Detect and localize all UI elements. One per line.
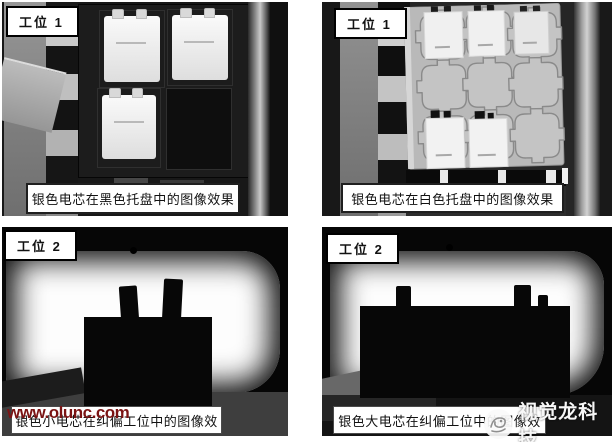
photo-edge — [270, 2, 288, 216]
station-badge: 工位 1 — [6, 6, 79, 37]
edge-dot — [130, 247, 137, 254]
tray-pin — [546, 170, 556, 184]
figure-grid: 工位 1 银色电芯在黑色托盘中的图像效果 — [0, 0, 616, 442]
machine-rail — [574, 2, 600, 216]
cell-tab — [204, 8, 215, 18]
cell-tab — [136, 9, 147, 19]
battery-cell — [172, 15, 228, 80]
brand-name-text: 视觉龙科技 — [518, 397, 616, 442]
battery-cell — [514, 11, 549, 54]
rack-block — [378, 134, 410, 160]
cell-tab — [132, 88, 143, 98]
caption: 银色电芯在黑色托盘中的图像效果 — [26, 183, 240, 214]
cell-print — [184, 41, 214, 43]
dragon-circle-logo-icon — [484, 409, 513, 439]
site-url-watermark: www.olunc.com — [7, 403, 129, 423]
rack-block — [378, 102, 410, 134]
battery-silhouette — [84, 317, 212, 408]
tray-pin — [498, 170, 506, 184]
battery-cell — [102, 95, 156, 159]
dragon-glyph — [486, 411, 512, 437]
photo-silver-cells-white-tray: 工位 1 银色电芯在白色托盘中的图像效果 — [322, 2, 612, 216]
machine-rail — [248, 2, 270, 216]
small-white-tag — [562, 168, 568, 184]
cell-print — [523, 42, 537, 44]
brand-watermark: 视觉龙科技 — [484, 397, 616, 442]
cell-print — [114, 121, 144, 123]
cell-print — [435, 46, 450, 48]
white-tray — [404, 3, 568, 173]
station-badge: 工位 1 — [334, 8, 407, 39]
rack-block — [46, 130, 78, 156]
cell-print — [478, 44, 493, 46]
rack-block — [46, 156, 78, 186]
cell-tab — [109, 88, 121, 98]
cell-tab — [180, 8, 192, 18]
edge-dot — [446, 244, 453, 251]
white-tray-graphic — [404, 3, 568, 173]
empty-tray-slot — [166, 88, 232, 170]
photo-edge — [600, 2, 612, 216]
caption: 银色电芯在白色托盘中的图像效果 — [341, 183, 564, 213]
battery-tab-silhouette — [162, 279, 183, 322]
battery-cell — [104, 16, 160, 82]
battery-cell — [426, 118, 465, 169]
station-badge: 工位 2 — [4, 230, 77, 261]
photo-silver-cells-black-tray: 工位 1 银色电芯在黑色托盘中的图像效果 — [2, 2, 288, 216]
cell-print — [436, 154, 452, 156]
tray-pin — [440, 170, 448, 184]
station-badge: 工位 2 — [326, 233, 399, 264]
cell-print — [116, 42, 146, 44]
battery-cell — [469, 118, 508, 167]
battery-cell — [468, 11, 505, 57]
battery-silhouette — [360, 306, 570, 398]
cell-tab — [112, 9, 124, 19]
battery-cell — [424, 12, 463, 59]
